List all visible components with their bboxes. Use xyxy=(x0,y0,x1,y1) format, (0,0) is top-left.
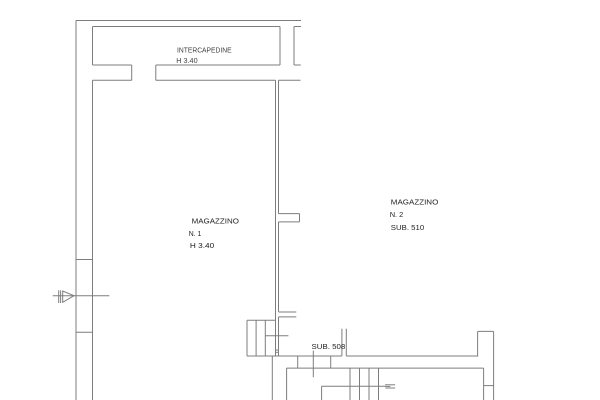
svg-text:H 3.40: H 3.40 xyxy=(176,58,197,65)
svg-text:MAGAZZINO: MAGAZZINO xyxy=(391,198,439,207)
svg-text:MAGAZZINO: MAGAZZINO xyxy=(192,217,239,226)
svg-text:SUB. 508: SUB. 508 xyxy=(312,342,346,351)
svg-text:SUB. 510: SUB. 510 xyxy=(391,223,424,232)
svg-text:INTERCAPEDINE: INTERCAPEDINE xyxy=(177,48,232,55)
svg-text:H 3.40: H 3.40 xyxy=(190,241,214,250)
svg-text:N. 2: N. 2 xyxy=(390,210,404,219)
svg-text:N. 1: N. 1 xyxy=(189,229,202,238)
